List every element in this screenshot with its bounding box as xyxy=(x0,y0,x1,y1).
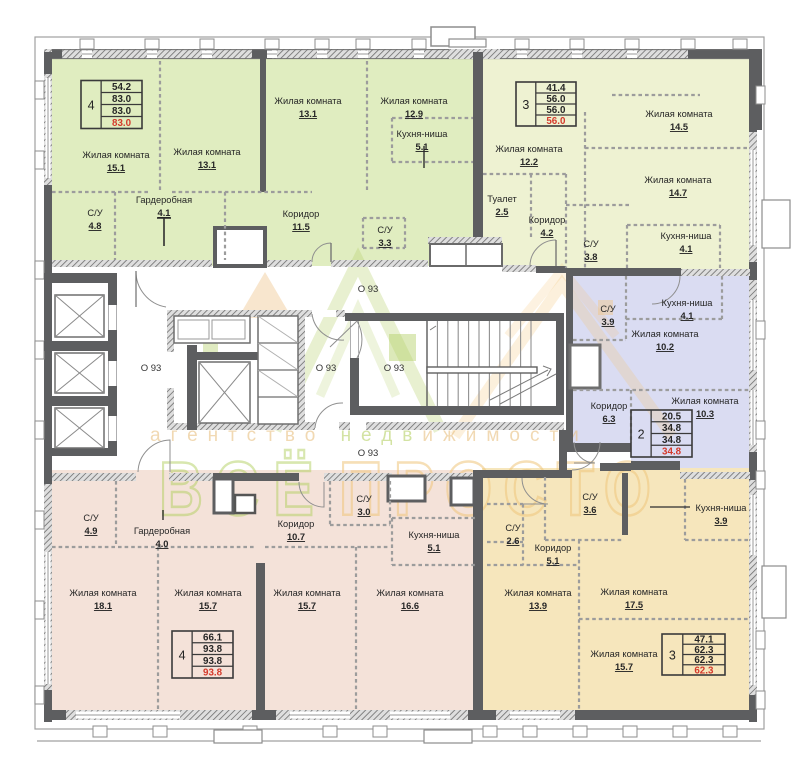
svg-text:93.8: 93.8 xyxy=(203,644,223,655)
svg-text:10.7: 10.7 xyxy=(287,532,305,542)
svg-text:Кухня-ниша: Кухня-ниша xyxy=(397,129,449,139)
svg-text:83.0: 83.0 xyxy=(112,118,132,129)
svg-text:10.2: 10.2 xyxy=(656,342,674,352)
svg-text:34.8: 34.8 xyxy=(662,447,682,458)
svg-text:4.1: 4.1 xyxy=(680,244,693,254)
svg-text:3.9: 3.9 xyxy=(602,317,615,327)
svg-text:О 93: О 93 xyxy=(316,363,337,374)
svg-text:3.0: 3.0 xyxy=(358,507,371,517)
svg-text:Жилая комната: Жилая комната xyxy=(376,588,444,598)
svg-text:41.4: 41.4 xyxy=(546,83,566,94)
svg-text:93.8: 93.8 xyxy=(203,656,223,667)
svg-text:15.1: 15.1 xyxy=(107,163,125,173)
svg-text:4.2: 4.2 xyxy=(541,228,554,238)
svg-text:Жилая комната: Жилая комната xyxy=(173,147,241,157)
svg-text:13.1: 13.1 xyxy=(299,109,317,119)
svg-text:Жилая комната: Жилая комната xyxy=(504,588,572,598)
svg-text:Жилая комната: Жилая комната xyxy=(69,588,137,598)
svg-text:34.8: 34.8 xyxy=(662,423,682,434)
svg-text:11.5: 11.5 xyxy=(292,222,310,232)
svg-text:12.2: 12.2 xyxy=(520,157,538,167)
svg-text:Жилая комната: Жилая комната xyxy=(590,649,658,659)
svg-text:5.1: 5.1 xyxy=(428,543,441,553)
svg-text:Жилая комната: Жилая комната xyxy=(380,96,448,106)
svg-text:Кухня-ниша: Кухня-ниша xyxy=(409,530,461,540)
svg-text:Жилая комната: Жилая комната xyxy=(174,588,242,598)
svg-text:4.8: 4.8 xyxy=(89,221,102,231)
svg-text:Жилая комната: Жилая комната xyxy=(645,109,713,119)
svg-text:Жилая комната: Жилая комната xyxy=(273,588,341,598)
svg-text:С/У: С/У xyxy=(583,239,598,249)
svg-text:16.6: 16.6 xyxy=(401,601,419,611)
svg-text:66.1: 66.1 xyxy=(203,632,223,643)
svg-text:15.7: 15.7 xyxy=(199,601,217,611)
svg-text:93.8: 93.8 xyxy=(203,668,223,679)
svg-text:Жилая комната: Жилая комната xyxy=(82,150,150,160)
svg-text:20.5: 20.5 xyxy=(662,411,682,422)
svg-text:6.3: 6.3 xyxy=(603,414,616,424)
svg-text:12.9: 12.9 xyxy=(405,109,423,119)
svg-text:4.0: 4.0 xyxy=(156,539,169,549)
svg-text:62.3: 62.3 xyxy=(694,665,714,676)
svg-text:56.0: 56.0 xyxy=(546,105,566,116)
svg-text:О 93: О 93 xyxy=(141,363,162,374)
svg-text:Жилая комната: Жилая комната xyxy=(274,96,342,106)
svg-text:Жилая комната: Жилая комната xyxy=(644,175,712,185)
svg-text:О 93: О 93 xyxy=(358,284,379,295)
svg-text:Гардеробная: Гардеробная xyxy=(136,195,192,205)
svg-text:10.3: 10.3 xyxy=(696,409,714,419)
svg-text:15.7: 15.7 xyxy=(615,662,633,672)
svg-text:Коридор: Коридор xyxy=(283,209,320,219)
svg-text:Коридор: Коридор xyxy=(529,215,566,225)
svg-text:С/У: С/У xyxy=(87,208,102,218)
svg-text:3.3: 3.3 xyxy=(379,238,392,248)
svg-text:14.7: 14.7 xyxy=(669,188,687,198)
svg-text:4.1: 4.1 xyxy=(158,208,171,218)
svg-text:3.6: 3.6 xyxy=(584,505,597,515)
svg-text:56.0: 56.0 xyxy=(546,94,566,105)
svg-text:3: 3 xyxy=(522,98,529,112)
svg-text:4: 4 xyxy=(88,99,95,113)
svg-text:Кухня-ниша: Кухня-ниша xyxy=(696,503,748,513)
svg-text:Коридор: Коридор xyxy=(591,401,628,411)
svg-text:С/У: С/У xyxy=(600,304,615,314)
svg-text:56.0: 56.0 xyxy=(546,116,566,127)
svg-text:83.0: 83.0 xyxy=(112,106,132,117)
svg-text:2.6: 2.6 xyxy=(507,536,520,546)
svg-text:С/У: С/У xyxy=(377,225,392,235)
svg-text:13.9: 13.9 xyxy=(529,601,547,611)
svg-text:18.1: 18.1 xyxy=(94,601,112,611)
svg-text:С/У: С/У xyxy=(356,494,371,504)
svg-text:3.8: 3.8 xyxy=(585,252,598,262)
svg-text:4.1: 4.1 xyxy=(681,311,694,321)
svg-text:3: 3 xyxy=(669,649,676,663)
svg-text:Кухня-ниша: Кухня-ниша xyxy=(661,231,713,241)
svg-text:2.5: 2.5 xyxy=(496,207,509,217)
svg-text:Туалет: Туалет xyxy=(487,194,517,204)
svg-text:Коридор: Коридор xyxy=(278,519,315,529)
svg-text:83.0: 83.0 xyxy=(112,94,132,105)
svg-text:15.7: 15.7 xyxy=(298,601,316,611)
svg-text:Кухня-ниша: Кухня-ниша xyxy=(662,298,714,308)
svg-text:4.9: 4.9 xyxy=(85,526,98,536)
svg-text:Жилая комната: Жилая комната xyxy=(631,329,699,339)
svg-text:Гардеробная: Гардеробная xyxy=(134,526,190,536)
svg-text:3.9: 3.9 xyxy=(715,516,728,526)
svg-text:Жилая комната: Жилая комната xyxy=(495,144,563,154)
svg-text:5.1: 5.1 xyxy=(416,142,429,152)
svg-text:Жилая комната: Жилая комната xyxy=(671,396,739,406)
svg-text:Коридор: Коридор xyxy=(535,543,572,553)
svg-text:17.5: 17.5 xyxy=(625,600,643,610)
svg-text:34.8: 34.8 xyxy=(662,435,682,446)
svg-text:4: 4 xyxy=(179,649,186,663)
svg-text:С/У: С/У xyxy=(83,513,98,523)
svg-text:54.2: 54.2 xyxy=(112,82,132,93)
svg-text:14.5: 14.5 xyxy=(670,122,688,132)
svg-text:С/У: С/У xyxy=(582,492,597,502)
svg-text:С/У: С/У xyxy=(505,523,520,533)
svg-text:О 93: О 93 xyxy=(384,363,405,374)
svg-text:О 93: О 93 xyxy=(358,448,379,459)
svg-text:5.1: 5.1 xyxy=(547,556,560,566)
svg-text:13.1: 13.1 xyxy=(198,160,216,170)
svg-text:Жилая комната: Жилая комната xyxy=(600,587,668,597)
svg-text:2: 2 xyxy=(638,428,645,442)
